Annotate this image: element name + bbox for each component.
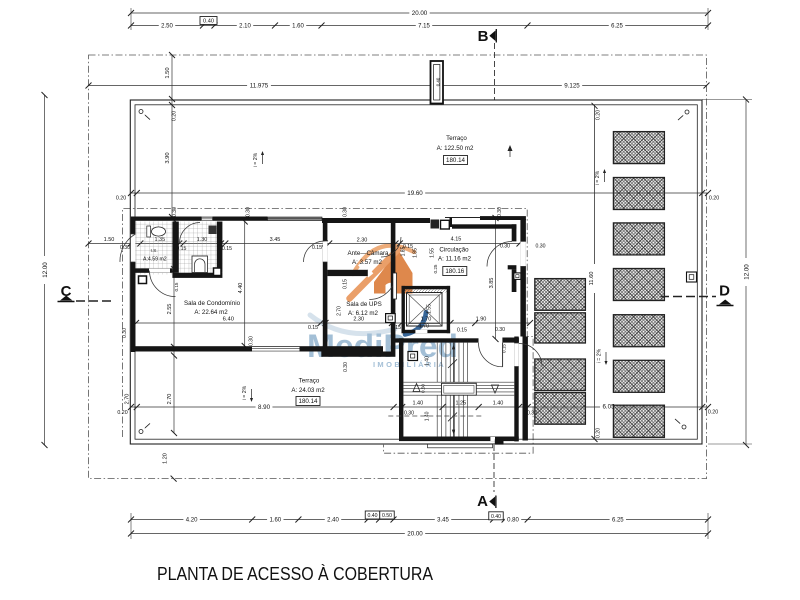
svg-text:A:4.59 m2: A:4.59 m2	[143, 257, 167, 263]
svg-text:IMOBILIÁRIA: IMOBILIÁRIA	[373, 360, 446, 369]
svg-text:0.15: 0.15	[342, 279, 348, 289]
svg-text:0.20: 0.20	[117, 410, 127, 416]
svg-text:2.40: 2.40	[327, 518, 339, 524]
svg-text:20.00: 20.00	[407, 531, 423, 538]
svg-text:2.50: 2.50	[161, 24, 173, 30]
svg-text:0.30: 0.30	[495, 327, 505, 333]
svg-text:0.30: 0.30	[535, 244, 545, 250]
svg-text:A: 11.16 m2: A: 11.16 m2	[438, 256, 471, 263]
svg-text:19.60: 19.60	[407, 190, 423, 197]
svg-text:2.55: 2.55	[167, 304, 173, 315]
svg-text:A: 3.57 m2: A: 3.57 m2	[352, 259, 382, 266]
svg-text:1.40: 1.40	[425, 356, 431, 366]
svg-text:6.40: 6.40	[223, 317, 234, 323]
svg-text:1.55: 1.55	[429, 248, 435, 258]
svg-text:3.45: 3.45	[270, 237, 281, 243]
svg-text:Circulação: Circulação	[439, 247, 469, 254]
svg-text:0.20: 0.20	[172, 111, 178, 121]
svg-text:0.40: 0.40	[367, 513, 377, 519]
svg-text:3.45: 3.45	[437, 518, 449, 524]
svg-text:1.20: 1.20	[163, 453, 169, 464]
svg-text:0.20: 0.20	[596, 428, 602, 438]
svg-text:0.30: 0.30	[249, 336, 255, 346]
svg-text:I.S.: I.S.	[151, 248, 158, 254]
svg-text:0.20: 0.20	[596, 110, 602, 120]
svg-text:2.70: 2.70	[337, 306, 343, 316]
svg-text:1.40: 1.40	[493, 401, 504, 407]
svg-text:0.30: 0.30	[404, 411, 414, 417]
svg-text:11.60: 11.60	[589, 271, 595, 285]
svg-text:Ante—Câmara: Ante—Câmara	[348, 250, 389, 257]
svg-text:0.30: 0.30	[120, 245, 130, 251]
svg-text:7.15: 7.15	[418, 24, 430, 30]
svg-text:0.30: 0.30	[343, 362, 349, 372]
svg-text:i = 2%: i = 2%	[595, 170, 601, 185]
svg-text:8.90: 8.90	[258, 404, 271, 411]
svg-text:0.20: 0.20	[709, 196, 719, 202]
svg-text:4.40: 4.40	[238, 283, 244, 294]
svg-text:0.80: 0.80	[507, 518, 519, 524]
svg-text:6.25: 6.25	[611, 24, 623, 30]
svg-text:D: D	[719, 283, 730, 300]
svg-text:1.70: 1.70	[419, 324, 429, 330]
svg-text:0.15: 0.15	[174, 282, 179, 291]
svg-text:A: 22.64 m2: A: 22.64 m2	[194, 309, 228, 316]
svg-text:B: B	[478, 28, 489, 45]
svg-text:0.20: 0.20	[116, 196, 126, 202]
svg-text:0.40: 0.40	[436, 77, 441, 86]
svg-text:2.10: 2.10	[239, 24, 251, 30]
svg-text:0.50: 0.50	[382, 513, 392, 519]
svg-text:20.00: 20.00	[412, 10, 428, 17]
svg-text:A: A	[477, 493, 488, 510]
svg-text:0.25: 0.25	[433, 264, 438, 273]
svg-text:A: 6.12 m2: A: 6.12 m2	[348, 310, 378, 317]
svg-text:i = 2%: i = 2%	[253, 152, 259, 167]
svg-text:PLANTA DE ACESSO À COBERTURA: PLANTA DE ACESSO À COBERTURA	[157, 563, 434, 584]
svg-text:0.15: 0.15	[457, 328, 467, 334]
svg-text:A: 24.03 m2: A: 24.03 m2	[291, 387, 325, 394]
svg-text:0.20: 0.20	[708, 410, 718, 416]
svg-text:Terraço: Terraço	[299, 378, 320, 385]
svg-text:6.25: 6.25	[612, 518, 624, 524]
svg-text:0.30: 0.30	[172, 207, 178, 217]
svg-text:0.40: 0.40	[491, 514, 501, 520]
svg-text:3.90: 3.90	[165, 152, 171, 163]
svg-text:1.50: 1.50	[104, 237, 115, 243]
svg-text:1.90: 1.90	[476, 317, 487, 323]
svg-text:0.15: 0.15	[312, 245, 322, 251]
svg-text:MediPred: MediPred	[307, 328, 458, 364]
svg-text:1.85: 1.85	[401, 246, 407, 256]
svg-text:0.40: 0.40	[203, 19, 214, 25]
svg-text:9.125: 9.125	[564, 83, 580, 90]
svg-text:1.60: 1.60	[292, 24, 304, 30]
svg-text:0.50: 0.50	[421, 384, 426, 393]
svg-text:1.40: 1.40	[425, 411, 431, 421]
svg-text:0.15: 0.15	[308, 325, 318, 331]
svg-text:2.70: 2.70	[167, 394, 173, 405]
svg-text:4.20: 4.20	[186, 518, 198, 524]
svg-text:2.30: 2.30	[357, 238, 368, 244]
svg-text:12.00: 12.00	[42, 262, 49, 278]
svg-text:180.14: 180.14	[446, 157, 465, 164]
svg-text:3.85: 3.85	[489, 278, 495, 289]
svg-text:2.30: 2.30	[353, 317, 364, 323]
svg-text:1.85: 1.85	[413, 248, 419, 258]
svg-text:1.60: 1.60	[269, 518, 281, 524]
svg-text:Sala de Condomínio: Sala de Condomínio	[184, 300, 241, 307]
svg-text:i = 2%: i = 2%	[242, 385, 248, 400]
svg-text:1.70: 1.70	[421, 317, 432, 323]
svg-text:12.00: 12.00	[744, 264, 751, 280]
svg-text:i = 2%: i = 2%	[597, 348, 603, 363]
svg-text:0.30: 0.30	[246, 207, 252, 217]
svg-text:Terraço: Terraço	[446, 135, 467, 142]
svg-text:180.14: 180.14	[299, 398, 318, 405]
svg-text:0.15: 0.15	[222, 246, 232, 252]
svg-text:1.25: 1.25	[455, 401, 466, 407]
svg-text:Sala de UPS: Sala de UPS	[346, 301, 381, 308]
svg-text:2.70: 2.70	[125, 394, 131, 405]
svg-text:1.55: 1.55	[427, 304, 433, 314]
svg-text:1.50: 1.50	[165, 67, 171, 78]
svg-text:0.30: 0.30	[343, 207, 349, 217]
svg-text:A: 122.50 m2: A: 122.50 m2	[437, 145, 474, 152]
svg-text:0.30: 0.30	[497, 207, 503, 217]
svg-text:1.40: 1.40	[412, 401, 423, 407]
svg-text:180.16: 180.16	[445, 268, 464, 275]
svg-text:11.975: 11.975	[250, 83, 269, 90]
svg-text:4.15: 4.15	[451, 237, 462, 243]
svg-text:0.30: 0.30	[122, 328, 128, 338]
svg-text:0.30: 0.30	[500, 244, 510, 250]
